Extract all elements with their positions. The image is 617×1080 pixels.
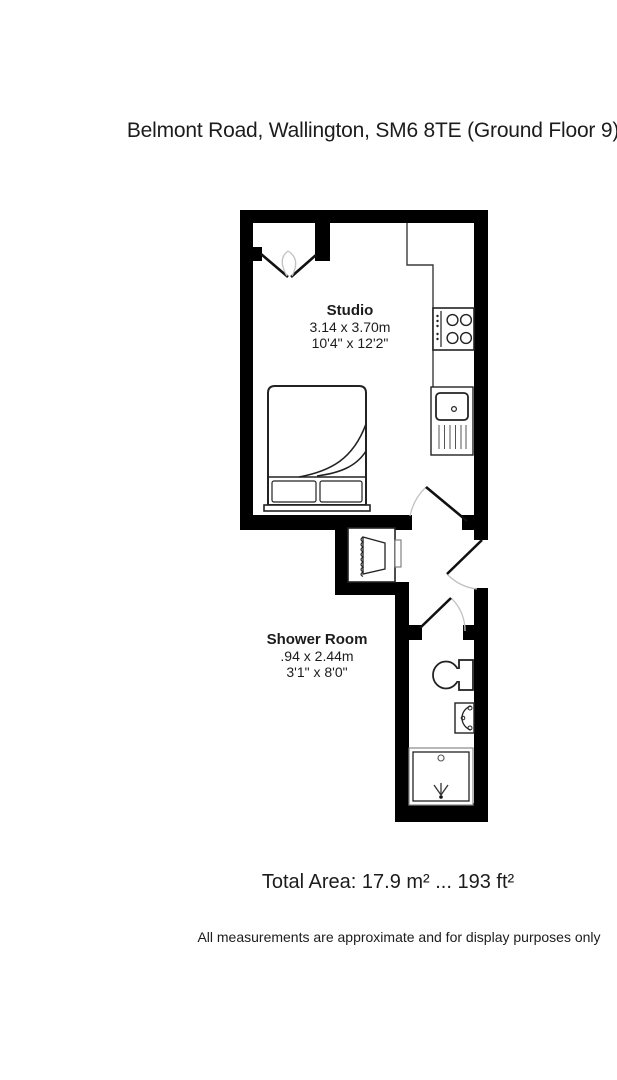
- toilet-icon: [433, 660, 473, 690]
- studio-door-icon: [410, 487, 467, 521]
- shower-room-size-imperial: 3'1" x 8'0": [267, 664, 368, 680]
- shower-tray-icon: [409, 748, 473, 805]
- studio-name: Studio: [310, 303, 391, 319]
- wall-stub-window-hinge: [253, 247, 262, 261]
- wall-right-upper: [474, 210, 488, 540]
- wall-right-lower: [474, 588, 488, 822]
- floorplan-diagram: [0, 0, 617, 1080]
- total-area-text: Total Area: 17.9 m² ... 193 ft²: [262, 871, 514, 894]
- wall-shower-left: [395, 593, 409, 822]
- entrance-door-icon: [447, 540, 482, 589]
- wall-stub-window: [315, 223, 330, 261]
- wall-shower-bottom: [395, 803, 488, 822]
- wardrobe-icon: [348, 528, 401, 582]
- kitchen-sink-icon: [431, 387, 473, 455]
- studio-size-metric: 3.14 x 3.70m: [310, 319, 391, 335]
- shower-room-size-metric: .94 x 2.44m: [267, 648, 368, 664]
- hob-icon: [433, 308, 474, 350]
- wall-left: [240, 210, 253, 530]
- shower-door-icon: [420, 598, 465, 631]
- disclaimer-text: All measurements are approximate and for…: [197, 929, 600, 945]
- double-window-icon: [261, 251, 316, 277]
- studio-size-imperial: 10'4" x 12'2": [310, 335, 391, 351]
- room-label-shower-room: Shower Room .94 x 2.44m 3'1" x 8'0": [267, 632, 368, 680]
- wall-top: [240, 210, 488, 223]
- kitchen-counter-line: [407, 223, 433, 455]
- shower-room-name: Shower Room: [267, 632, 368, 648]
- bed-icon: [264, 386, 370, 511]
- wall-alcove-left: [335, 530, 349, 583]
- floorplan-page: { "page": { "title": "Belmont Road, Wall…: [0, 0, 617, 1080]
- basin-icon: [455, 703, 474, 733]
- room-label-studio: Studio 3.14 x 3.70m 10'4" x 12'2": [310, 303, 391, 351]
